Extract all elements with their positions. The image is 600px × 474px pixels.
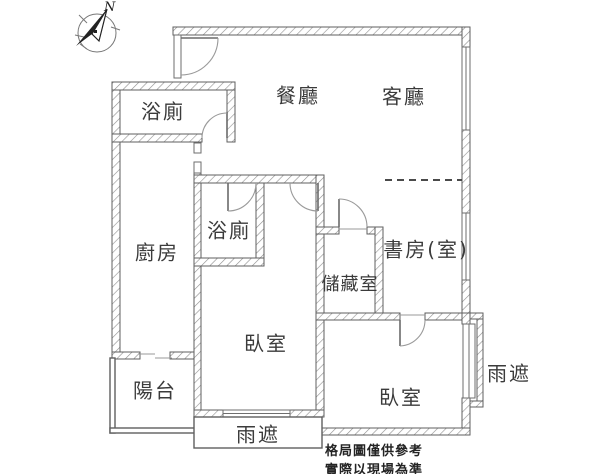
room-label-bedroom-right: 臥室 [379,382,423,411]
compass-north-label: N [104,0,115,15]
disclaimer-line-2: 實際以現場為準 [325,459,423,474]
room-label-living: 客廳 [382,81,426,110]
compass-icon [75,9,120,52]
disclaimer-line-1: 格局圖僅供參考 [325,440,423,459]
room-label-study: 書房(室) [383,234,469,263]
room-label-dining: 餐廳 [276,80,320,109]
room-label-balcony: 陽台 [133,375,177,404]
floor-plan: N 浴廁 餐廳 客廳 廚房 浴廁 書房(室) 儲藏室 臥室 陽台 臥室 雨遮 雨… [0,0,600,474]
room-label-bedroom-left: 臥室 [244,328,288,357]
room-label-rain-shelter-bottom: 雨遮 [236,419,280,448]
room-label-rain-shelter-right: 雨遮 [487,358,531,387]
floor-plan-drawing [0,0,600,474]
room-label-kitchen: 廚房 [135,237,179,266]
room-label-bathroom-top: 浴廁 [141,96,185,125]
room-label-storage: 儲藏室 [322,270,379,296]
room-label-bathroom-mid: 浴廁 [207,215,251,244]
